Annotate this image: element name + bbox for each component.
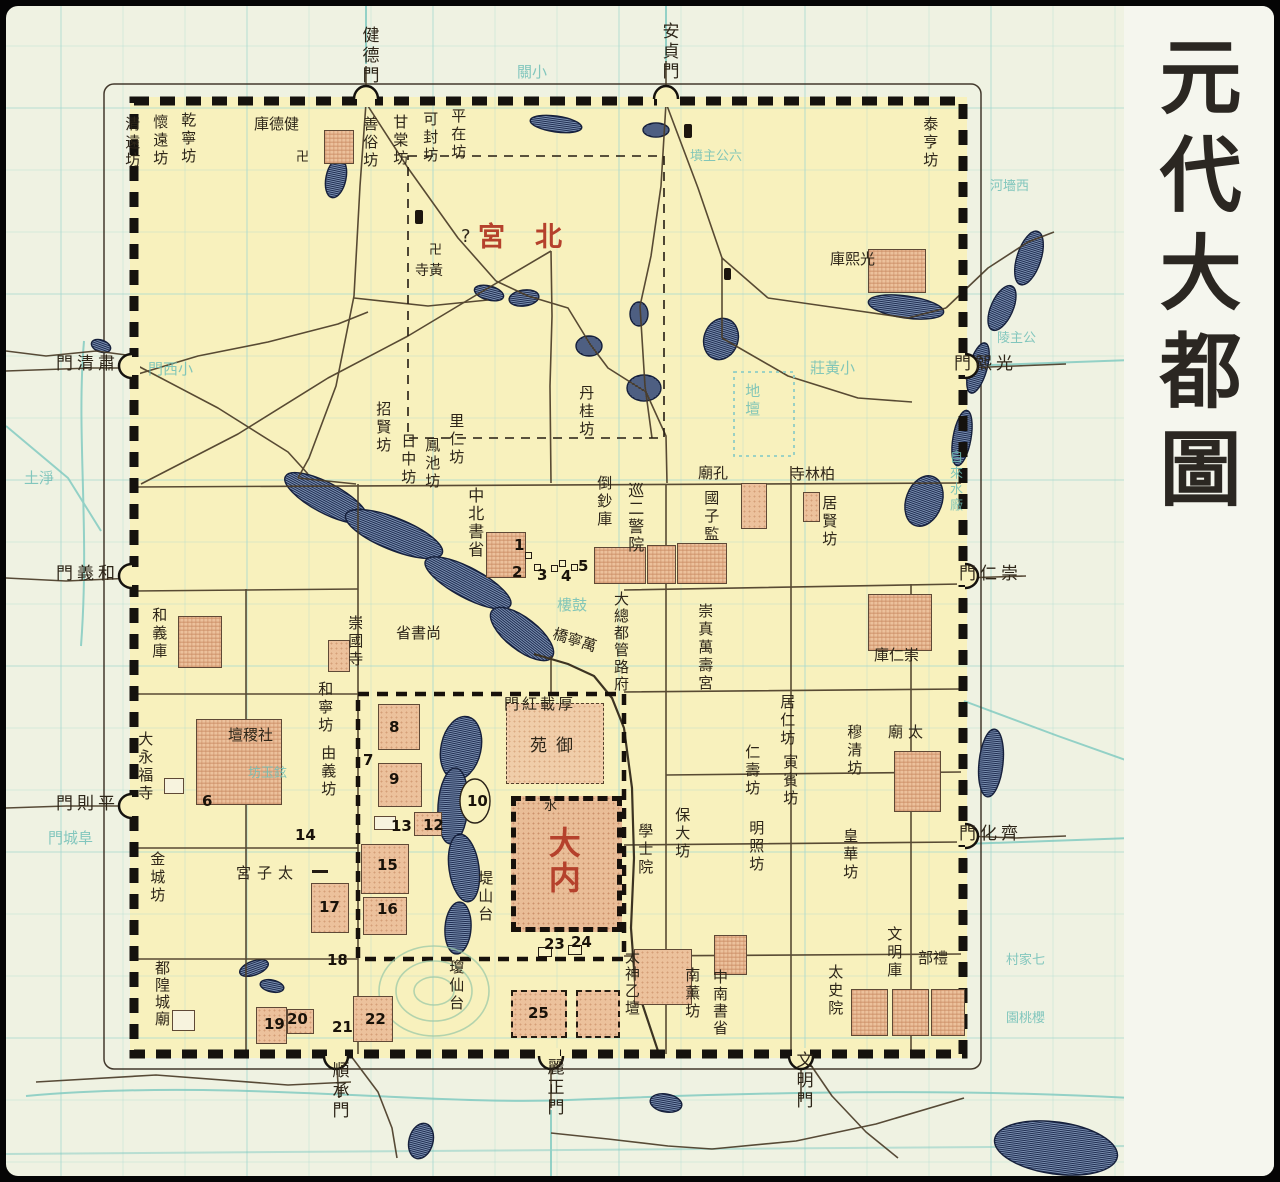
map-paper: 健德門安貞門門清肅門義和門則平門熙光門仁崇門化齊順承門麗正門文明門宮北?大内清遠…: [6, 6, 1274, 1176]
screenshot-root: 健德門安貞門門清肅門義和門則平門熙光門仁崇門化齊順承門麗正門文明門宮北?大内清遠…: [0, 0, 1280, 1182]
map-title: 元代大都圖: [1150, 34, 1236, 524]
basemap-svg: [6, 6, 1131, 1176]
lake-island: [460, 779, 490, 823]
